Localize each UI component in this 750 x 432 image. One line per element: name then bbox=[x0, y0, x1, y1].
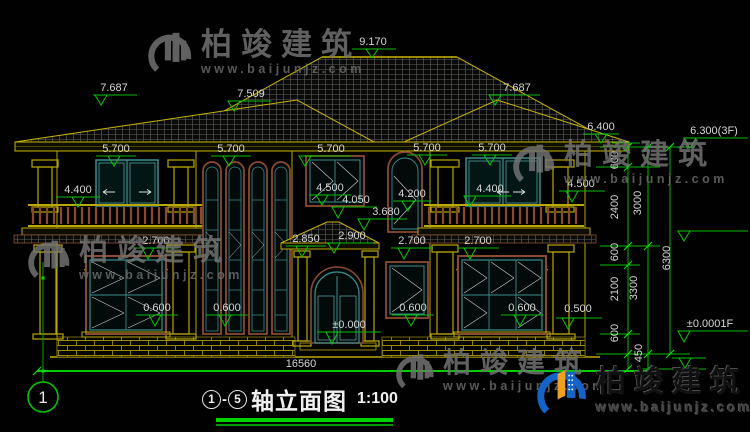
dim-label: 5.700 bbox=[102, 143, 130, 155]
dim-label: 3.680 bbox=[372, 206, 400, 218]
right-1f bbox=[431, 245, 575, 339]
dim-label: 600 bbox=[609, 324, 621, 342]
drawing-scale: 1:100 bbox=[357, 390, 398, 408]
dim-label: 16560 bbox=[286, 358, 317, 370]
right-balcony bbox=[412, 158, 596, 243]
axis-range-separator: - bbox=[222, 391, 227, 408]
dim-label: 600 bbox=[609, 243, 621, 261]
title-underline-thin bbox=[216, 424, 393, 426]
dim-label: 0.600 bbox=[213, 302, 241, 314]
dim-label: 4.400 bbox=[64, 184, 92, 196]
brand-name: 柏竣建筑 bbox=[596, 368, 750, 398]
dim-label: 7.509 bbox=[237, 88, 265, 100]
dim-label: 4.400 bbox=[476, 183, 504, 195]
brand-logo-icon bbox=[536, 360, 590, 422]
dim-label: 2100 bbox=[609, 277, 621, 301]
dim-label: 6300 bbox=[661, 246, 673, 270]
dim-label: 3000 bbox=[632, 191, 644, 215]
dim-label: 2400 bbox=[609, 195, 621, 219]
dim-label: 0.500 bbox=[564, 303, 592, 315]
dim-label: 0.600 bbox=[143, 302, 171, 314]
dim-label: 4.500 bbox=[567, 178, 595, 190]
dim-label: 3300 bbox=[628, 276, 640, 300]
title-underline-thick bbox=[216, 418, 393, 422]
dim-label: ±0.0001F bbox=[687, 318, 734, 330]
axis-to-bubble: 5 bbox=[228, 390, 247, 409]
dim-label: ±0.000 bbox=[332, 319, 366, 331]
dim-label: 7.687 bbox=[100, 82, 128, 94]
dim-label: 0.600 bbox=[508, 302, 536, 314]
dim-label: 0.600 bbox=[399, 302, 427, 314]
dim-label: 2.700 bbox=[464, 235, 492, 247]
brand-url: www.baijunjz.com bbox=[596, 401, 750, 415]
dim-label: 9.170 bbox=[359, 36, 387, 48]
dim-label: 2.700 bbox=[398, 235, 426, 247]
cad-drawing-screen: 1 bbox=[0, 0, 750, 432]
dim-label: 2.850 bbox=[292, 233, 320, 245]
dim-label: 5.700 bbox=[317, 143, 345, 155]
dim-label: 5.700 bbox=[413, 142, 441, 154]
left-balcony bbox=[14, 160, 218, 243]
dim-label: 6.300(3F) bbox=[690, 125, 738, 137]
dim-label: 2.700 bbox=[142, 235, 170, 247]
axis-bubble-label: 1 bbox=[38, 388, 47, 407]
dim-label: 5.700 bbox=[478, 142, 506, 154]
dim-label: 7.687 bbox=[503, 82, 531, 94]
dim-label: 600 bbox=[609, 151, 621, 169]
dim-label: 2.900 bbox=[338, 230, 366, 242]
dim-label: 5.700 bbox=[217, 143, 245, 155]
dim-label: 4.050 bbox=[342, 194, 370, 206]
dim-label: 6.400 bbox=[587, 121, 615, 133]
axis-from-bubble: 1 bbox=[202, 390, 221, 409]
drawing-title-block: 1 - 5 轴立面图 1:100 bbox=[202, 382, 398, 426]
brand-logo-block: 柏竣建筑 www.baijunjz.com bbox=[536, 360, 750, 422]
drawing-title: 轴立面图 bbox=[251, 382, 347, 416]
roofs bbox=[15, 57, 629, 151]
dim-label: 4.200 bbox=[398, 188, 426, 200]
dim-label: 4.500 bbox=[316, 182, 344, 194]
